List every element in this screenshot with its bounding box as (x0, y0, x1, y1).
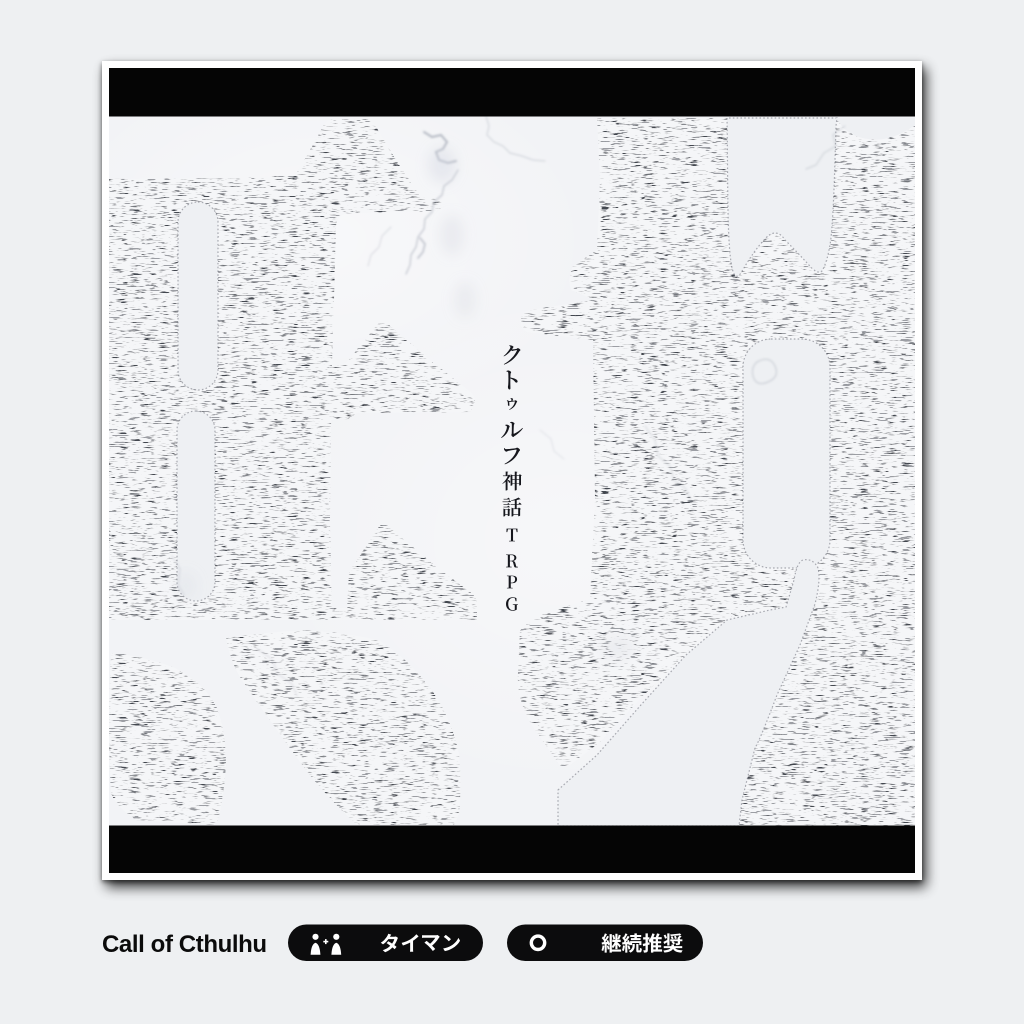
svg-text:Call of Cthulhu: Call of Cthulhu (102, 931, 267, 958)
